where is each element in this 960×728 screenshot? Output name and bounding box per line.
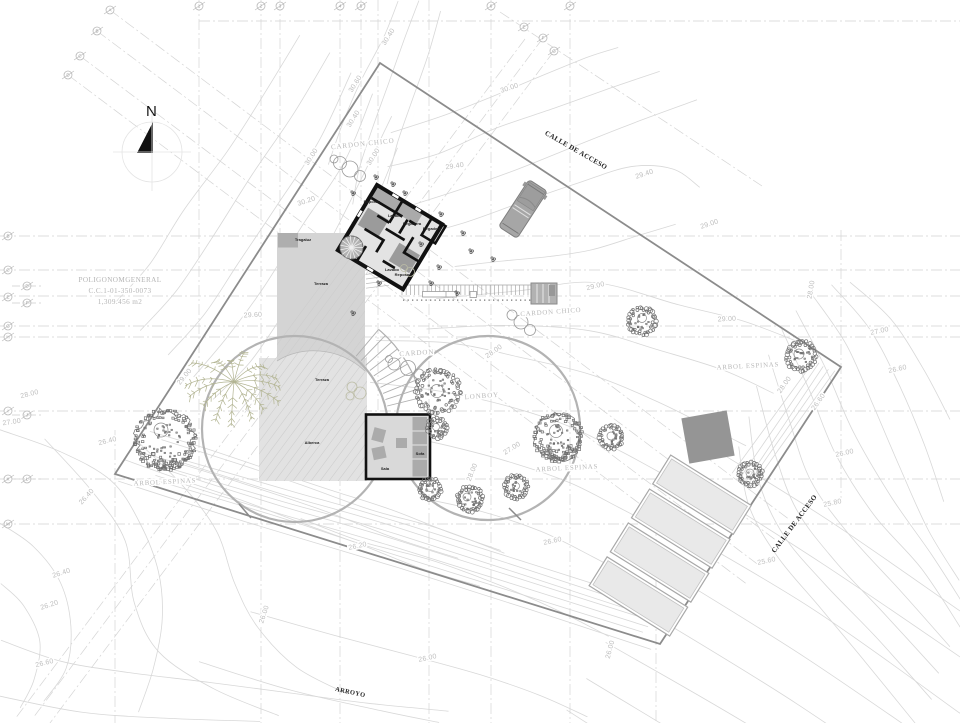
svg-text:A: A <box>108 8 111 13</box>
svg-text:Regadero: Regadero <box>423 226 442 231</box>
svg-text:N: N <box>146 103 157 120</box>
svg-text:M: M <box>6 522 10 527</box>
svg-text:29.60: 29.60 <box>243 312 262 320</box>
svg-text:B: B <box>95 29 98 34</box>
svg-text:E: E <box>6 295 9 300</box>
svg-text:Reposas: Reposas <box>395 272 412 277</box>
svg-text:Sala: Sala <box>381 466 390 471</box>
svg-text:POLIGONOMGENERAL: POLIGONOMGENERAL <box>78 276 161 284</box>
svg-text:Terraza: Terraza <box>314 281 329 286</box>
svg-text:C.C.1-01-350-0073: C.C.1-01-350-0073 <box>88 287 151 295</box>
svg-text:Tragaluz: Tragaluz <box>295 237 311 242</box>
svg-text:Reposas: Reposas <box>364 199 381 204</box>
svg-text:G: G <box>6 324 10 329</box>
svg-text:B: B <box>6 234 9 239</box>
svg-text:E: E <box>522 25 525 30</box>
svg-text:Alberca: Alberca <box>305 440 320 445</box>
svg-text:1,309.456 m2: 1,309.456 m2 <box>98 298 143 306</box>
svg-text:J: J <box>26 413 28 418</box>
svg-text:Lavabo: Lavabo <box>388 213 403 218</box>
svg-text:29.00: 29.00 <box>717 316 736 324</box>
svg-text:G: G <box>552 49 556 54</box>
svg-text:Terraza: Terraza <box>315 377 330 382</box>
svg-text:F: F <box>542 36 545 41</box>
svg-text:Sofa: Sofa <box>416 451 425 456</box>
svg-text:K: K <box>6 477 9 482</box>
svg-text:I: I <box>7 409 8 414</box>
svg-text:H: H <box>6 335 9 340</box>
svg-text:Regadera: Regadera <box>403 221 422 226</box>
